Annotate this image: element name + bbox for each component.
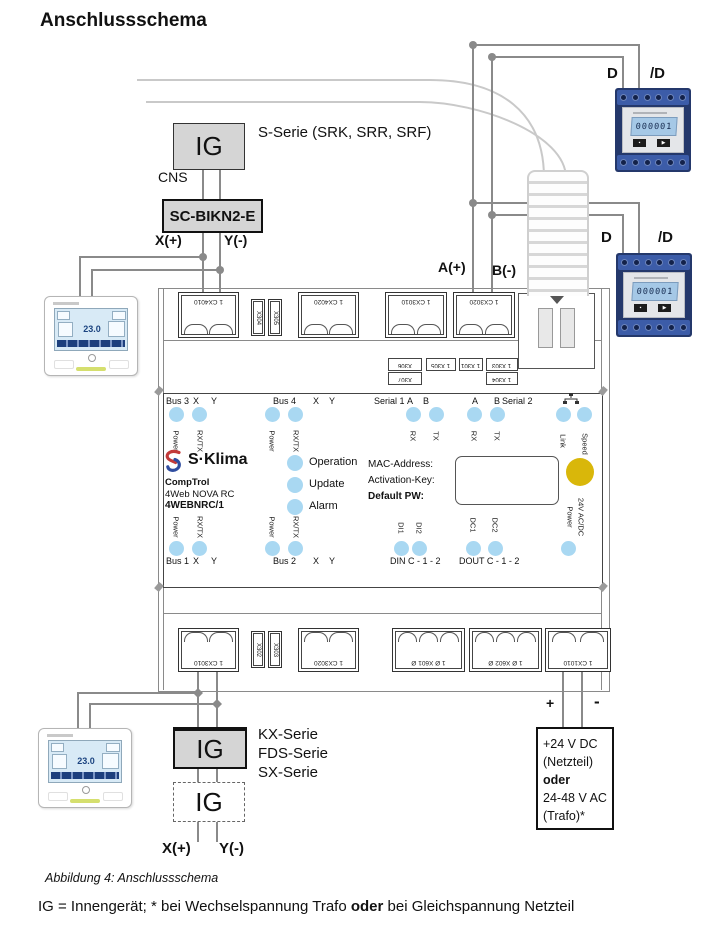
meter-panel: 000001 ▪ ▶: [623, 272, 685, 318]
header-a: A: [472, 396, 478, 406]
screw-icon: [667, 94, 674, 101]
tag-connector: X307: [388, 372, 422, 385]
product-code: 4WEBNRC/1: [165, 500, 224, 511]
label-tx: TX: [493, 431, 502, 441]
led-alarm: [287, 499, 303, 515]
remote-control-1: 23.0: [44, 296, 138, 376]
led-din-di1: [394, 541, 409, 556]
cable-socket[interactable]: [518, 293, 595, 369]
terminal-bump: [391, 324, 415, 334]
label-operation: Operation: [309, 456, 357, 468]
meter-button-left[interactable]: ▪: [633, 139, 646, 147]
adapter-box-sc-bikn2e: SC-BIKN2-E: [162, 199, 263, 233]
product-name: 4Web NOVA RC: [165, 489, 234, 500]
terminal-bumps: [182, 632, 235, 642]
terminal-code: X305: [272, 310, 278, 324]
socket-slot: [560, 308, 575, 348]
label-power: Power: [268, 516, 277, 537]
screw-icon: [620, 94, 627, 101]
screen-cell: [51, 743, 64, 752]
terminal-bump: [304, 632, 328, 642]
screen-cell: [106, 743, 120, 752]
screw-icon: [668, 259, 675, 266]
cable-plug: [527, 170, 589, 296]
terminal-bus4[interactable]: 1 CX4020: [298, 292, 359, 338]
screw-icon: [621, 259, 628, 266]
screw-icon: [645, 324, 652, 331]
label-rx: RX: [409, 431, 418, 441]
junction-dot: [469, 41, 477, 49]
meter-button-right[interactable]: ▶: [658, 304, 671, 312]
label-rxtx: RX/TX: [196, 430, 205, 452]
terminal-bumps: [473, 632, 538, 642]
terminal-code: 1 Ø X602 Ø: [473, 659, 538, 666]
terminal-bump: [419, 632, 438, 642]
led-bus4-power: [265, 407, 280, 422]
terminal-bump: [580, 632, 604, 642]
terminal-code: X306: [398, 362, 412, 368]
header-dout: DOUT C - 1 - 2: [459, 556, 519, 566]
header-y: Y: [211, 396, 217, 406]
footnote-text: bei Gleichspannung Netzteil: [383, 898, 574, 915]
screen-cell: [108, 321, 125, 337]
terminal-code: 1 CX4020: [302, 298, 355, 305]
screw-icon: [680, 324, 687, 331]
label-dc1: DC1: [469, 517, 478, 532]
terminal-bumps: [182, 324, 235, 334]
junction-diamond: [212, 699, 222, 709]
ig-label: IG: [195, 131, 222, 162]
x-plus-label-top: X(+): [155, 232, 182, 248]
s-klima-logo-icon: [164, 449, 185, 474]
ethernet-icon: [563, 393, 579, 405]
screen-cell: [57, 311, 70, 320]
screw-icon: [655, 159, 662, 166]
socket-arrow-icon: [550, 296, 564, 304]
remote-button[interactable]: [48, 792, 68, 801]
remote-home-icon: [88, 354, 96, 362]
ig-label: IG: [195, 787, 222, 818]
remote-brand-mark: [53, 302, 79, 305]
terminal-din-x601[interactable]: 1 Ø X601 Ø: [392, 628, 465, 672]
header-bus4: Bus 4: [273, 396, 296, 406]
header-x: X: [313, 396, 319, 406]
terminal-code: X302: [255, 642, 261, 656]
figure-caption: Abbildung 4: Anschlussschema: [45, 871, 218, 885]
header-y: Y: [211, 556, 217, 566]
junction-dot: [488, 53, 496, 61]
power-line: (Trafo)*: [543, 807, 607, 825]
screw-icon: [679, 94, 686, 101]
terminal-power-cx101[interactable]: 1 CX1010: [545, 628, 611, 672]
power-supply-box: +24 V DC (Netzteil) oder 24-48 V AC (Tra…: [536, 727, 614, 830]
junction-dot: [216, 266, 224, 274]
header-serial2: Serial 2: [502, 396, 533, 406]
remote-button[interactable]: [103, 792, 123, 801]
led-bus2-power: [265, 541, 280, 556]
terminal-inner: 1 CX4010: [181, 295, 236, 335]
label-default-pw: Default PW:: [368, 491, 424, 502]
terminal-bump: [398, 632, 417, 642]
label-tx: TX: [432, 431, 441, 441]
terminal-x304[interactable]: X304: [251, 299, 265, 336]
screen-status-bar: [57, 340, 125, 347]
tag-connector: 1 X303: [486, 358, 518, 371]
meter-text-row: [633, 112, 667, 114]
remote-led-bar: [70, 799, 100, 803]
header-y: Y: [329, 556, 335, 566]
header-bus1: Bus 1: [166, 556, 189, 566]
screw-icon: [645, 259, 652, 266]
diagram-canvas: Anschlussschema S-Serie (SRK, SRR, SRF) …: [0, 0, 722, 930]
screw-icon: [668, 324, 675, 331]
screen-cell: [58, 322, 73, 337]
socket-slot: [538, 308, 553, 348]
junction-dot: [199, 253, 207, 261]
terminal-serial1[interactable]: 1 CX3010: [385, 292, 447, 338]
tag-connector: 1 X301: [459, 358, 483, 371]
led-bus4-rxtx: [288, 407, 303, 422]
b-minus-label: B(-): [492, 262, 516, 278]
terminal-x302[interactable]: X302: [251, 631, 265, 668]
led-eth-link: [556, 407, 571, 422]
terminal-bump: [329, 632, 353, 642]
remote-temp-value: 23.0: [73, 756, 99, 766]
y-minus-label-top: Y(-): [224, 232, 247, 248]
screw-icon: [633, 259, 640, 266]
y-minus-label-bottom: Y(-): [219, 840, 244, 857]
header-x: X: [193, 556, 199, 566]
power-line: (Netzteil): [543, 753, 607, 771]
footnote: IG = Innengerät; * bei Wechselspannung T…: [38, 898, 574, 915]
terminal-code: 1 CX1010: [549, 659, 607, 666]
terminal-code: 1 X304: [492, 376, 511, 382]
buzzer-dot: [566, 458, 594, 486]
label-dc2: DC2: [491, 517, 500, 532]
ig-box-s-serie: IG: [173, 123, 245, 170]
terminal-bump: [417, 324, 441, 334]
terminal-inner: X302: [253, 633, 263, 666]
label-power: Power: [566, 506, 575, 527]
led-operation: [287, 455, 303, 471]
housing-divider-bottom: [163, 613, 601, 614]
label-power: Power: [268, 430, 277, 451]
meter2-d-label: D: [601, 229, 612, 246]
terminal-inner: 1 CX1010: [548, 631, 608, 669]
led-bus1-rxtx: [192, 541, 207, 556]
screen-cell: [102, 753, 119, 769]
led-update: [287, 477, 303, 493]
led-dout-dc2: [488, 541, 503, 556]
brand-name: S·Klima: [188, 451, 248, 469]
led-power-supply: [561, 541, 576, 556]
remote-control-2: 23.0: [38, 728, 132, 808]
terminal-code: 1 CX4010: [182, 298, 235, 305]
product-line: CompTrol: [165, 477, 209, 488]
cns-label: CNS: [158, 169, 188, 185]
meter-button-left[interactable]: ▪: [634, 304, 647, 312]
screen-status-bar: [51, 772, 119, 779]
kx-serie-label: KX-Serie: [258, 726, 318, 743]
terminal-bumps: [457, 324, 511, 334]
terminal-bump: [475, 632, 494, 642]
terminal-code: 1 Ø X601 Ø: [396, 659, 461, 666]
device-info-sticker: [455, 456, 559, 505]
header-bus2: Bus 2: [273, 556, 296, 566]
terminal-code: X307: [398, 376, 412, 382]
screw-icon: [644, 159, 651, 166]
screw-icon: [620, 159, 627, 166]
meter1-d-label: D: [607, 65, 618, 82]
footnote-text: IG = Innengerät; * bei Wechselspannung T…: [38, 898, 351, 915]
terminal-code: X303: [272, 642, 278, 656]
header-x: X: [193, 396, 199, 406]
label-24v-acdc: 24V AC/DC: [577, 498, 586, 536]
screw-icon: [655, 94, 662, 101]
junction-dot: [488, 211, 496, 219]
remote-home-icon: [82, 786, 90, 794]
terminal-code: 1 CX3020: [457, 298, 511, 305]
led-serial2-rx: [467, 407, 482, 422]
terminal-bus3[interactable]: 1 CX4010: [178, 292, 239, 338]
terminal-bus1[interactable]: 1 CX3010: [178, 628, 239, 672]
ig-box-dashed: IG: [173, 782, 245, 822]
terminal-inner: 1 CX3010: [181, 631, 236, 669]
terminal-serial2-ab[interactable]: 1 CX3020: [453, 292, 515, 338]
led-serial2-tx: [490, 407, 505, 422]
terminal-bumps: [302, 632, 355, 642]
meter1-nd-label: /D: [650, 65, 665, 82]
terminal-bump: [184, 632, 208, 642]
terminal-bump: [459, 324, 483, 334]
footnote-bold: oder: [351, 898, 384, 915]
terminal-bump: [209, 324, 233, 334]
terminal-inner: 1 Ø X602 Ø: [472, 631, 539, 669]
minus-label: -: [594, 692, 600, 712]
meter-terminal-strip: [618, 255, 690, 270]
terminal-bumps: [389, 324, 443, 334]
terminal-code: 1 CX3020: [302, 659, 355, 666]
led-bus1-power: [169, 541, 184, 556]
terminal-bumps: [302, 324, 355, 334]
label-mac-address: MAC-Address:: [368, 459, 433, 470]
terminal-inner: X304: [253, 301, 263, 334]
label-rx: RX: [470, 431, 479, 441]
tag-connector: 1 X304: [486, 372, 518, 385]
screw-icon: [633, 324, 640, 331]
header-bus3: Bus 3: [166, 396, 189, 406]
terminal-inner: X305: [270, 301, 280, 334]
s-serie-label: S-Serie (SRK, SRR, SRF): [258, 124, 431, 141]
screw-icon: [632, 159, 639, 166]
label-rxtx: RX/TX: [292, 430, 301, 452]
label-activation-key: Activation-Key:: [368, 475, 435, 486]
terminal-bus2[interactable]: 1 CX3020: [298, 628, 359, 672]
led-bus3-power: [169, 407, 184, 422]
header-din: DIN C - 1 - 2: [390, 556, 441, 566]
terminal-code: 1 X301: [461, 362, 480, 368]
label-di1: DI1: [397, 522, 406, 534]
screw-icon: [632, 94, 639, 101]
wire-meter1-d: [492, 57, 623, 90]
terminal-bump: [184, 324, 208, 334]
terminal-bump: [496, 632, 515, 642]
remote-button[interactable]: [54, 360, 74, 369]
a-plus-label: A(+): [438, 259, 466, 275]
terminal-code: 1 X305: [431, 362, 450, 368]
header-a: A: [407, 396, 413, 406]
terminal-x305[interactable]: X305: [268, 299, 282, 336]
terminal-code: 1 CX3010: [182, 659, 235, 666]
terminal-inner: X303: [270, 633, 280, 666]
led-din-di2: [412, 541, 427, 556]
screw-icon: [656, 259, 663, 266]
ig-box-kx-serie: IG: [173, 727, 247, 769]
ig-label: IG: [196, 734, 223, 765]
screw-icon: [667, 159, 674, 166]
terminal-bumps: [396, 632, 461, 642]
screw-icon: [680, 259, 687, 266]
terminal-inner: 1 CX3010: [388, 295, 444, 335]
meter-text-row: [634, 277, 668, 279]
meter-panel: 000001 ▪ ▶: [622, 107, 684, 153]
tag-connector: 1 X305: [426, 358, 456, 371]
meter-terminal-strip: [617, 90, 689, 105]
page-title: Anschlussschema: [40, 10, 207, 32]
screw-icon: [679, 159, 686, 166]
terminal-bump: [517, 632, 536, 642]
power-line: 24-48 V AC: [543, 789, 607, 807]
terminal-inner: 1 CX3020: [301, 631, 356, 669]
meter2-nd-label: /D: [658, 229, 673, 246]
led-dout-dc1: [466, 541, 481, 556]
power-line: +24 V DC: [543, 735, 607, 753]
adapter-label: SC-BIKN2-E: [170, 208, 256, 225]
remote-temp-value: 23.0: [79, 324, 105, 334]
terminal-inner: 1 CX4020: [301, 295, 356, 335]
terminal-code: X304: [255, 310, 261, 324]
remote-brand-mark: [47, 734, 73, 737]
terminal-dout-x602[interactable]: 1 Ø X602 Ø: [469, 628, 542, 672]
terminal-bump: [485, 324, 509, 334]
tag-connector: X306: [388, 358, 422, 371]
remote-screen[interactable]: 23.0: [48, 740, 122, 783]
header-y: Y: [329, 396, 335, 406]
meter-lcd: 000001: [630, 117, 677, 136]
junction-dot: [469, 199, 477, 207]
label-update: Update: [309, 478, 344, 490]
led-eth-speed: [577, 407, 592, 422]
terminal-bump: [209, 632, 233, 642]
x-plus-label-bottom: X(+): [162, 840, 191, 857]
sx-serie-label: SX-Serie: [258, 764, 318, 781]
label-alarm: Alarm: [309, 500, 338, 512]
label-link: Link: [559, 434, 568, 448]
terminal-code: 1 CX3010: [389, 298, 443, 305]
terminal-bump: [304, 324, 328, 334]
label-power: Power: [172, 516, 181, 537]
fds-serie-label: FDS-Serie: [258, 745, 328, 762]
terminal-bump: [440, 632, 459, 642]
header-serial1: Serial 1: [374, 396, 405, 406]
label-di2: DI2: [415, 522, 424, 534]
energy-meter-1: 000001 ▪ ▶: [615, 88, 691, 172]
header-b: B: [423, 396, 429, 406]
terminal-inner: 1 Ø X601 Ø: [395, 631, 462, 669]
header-b: B: [494, 396, 500, 406]
meter-button-right[interactable]: ▶: [657, 139, 670, 147]
screw-icon: [621, 324, 628, 331]
terminal-bump: [552, 632, 576, 642]
wire-branch-remote2-x: [78, 693, 198, 728]
energy-meter-2: 000001 ▪ ▶: [616, 253, 692, 337]
plus-label: +: [546, 695, 554, 711]
remote-button[interactable]: [109, 360, 129, 369]
led-bus3-rxtx: [192, 407, 207, 422]
terminal-inner: 1 CX3020: [456, 295, 512, 335]
meter-terminal-strip: [618, 320, 690, 335]
meter-lcd: 000001: [631, 282, 678, 301]
screw-icon: [644, 94, 651, 101]
meter-terminal-strip: [617, 155, 689, 170]
led-bus2-rxtx: [288, 541, 303, 556]
led-serial1-rx: [406, 407, 421, 422]
screw-icon: [656, 324, 663, 331]
header-x: X: [313, 556, 319, 566]
terminal-code: 1 X303: [492, 362, 511, 368]
terminal-bump: [329, 324, 353, 334]
label-rxtx: RX/TX: [196, 516, 205, 538]
led-serial1-tx: [429, 407, 444, 422]
remote-led-bar: [76, 367, 106, 371]
label-rxtx: RX/TX: [292, 516, 301, 538]
remote-screen[interactable]: 23.0: [54, 308, 128, 351]
power-line: oder: [543, 771, 607, 789]
screen-cell: [52, 754, 67, 769]
label-speed: Speed: [581, 433, 590, 455]
terminal-x303[interactable]: X303: [268, 631, 282, 668]
screen-cell: [112, 311, 126, 320]
terminal-bumps: [549, 632, 607, 642]
